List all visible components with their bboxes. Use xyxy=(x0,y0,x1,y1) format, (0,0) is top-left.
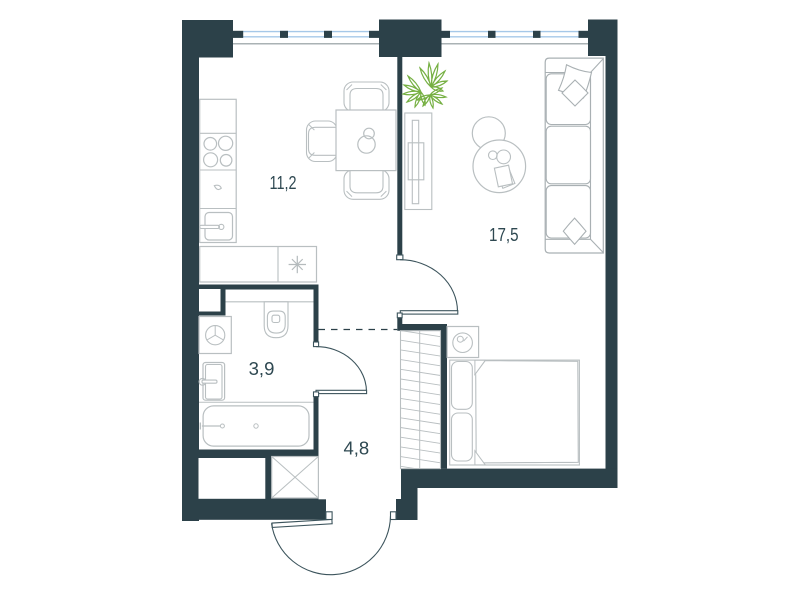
svg-text:3,9: 3,9 xyxy=(249,358,275,379)
svg-text:11,2: 11,2 xyxy=(269,172,296,193)
svg-text:4,8: 4,8 xyxy=(343,438,369,459)
svg-text:17,5: 17,5 xyxy=(489,225,519,246)
